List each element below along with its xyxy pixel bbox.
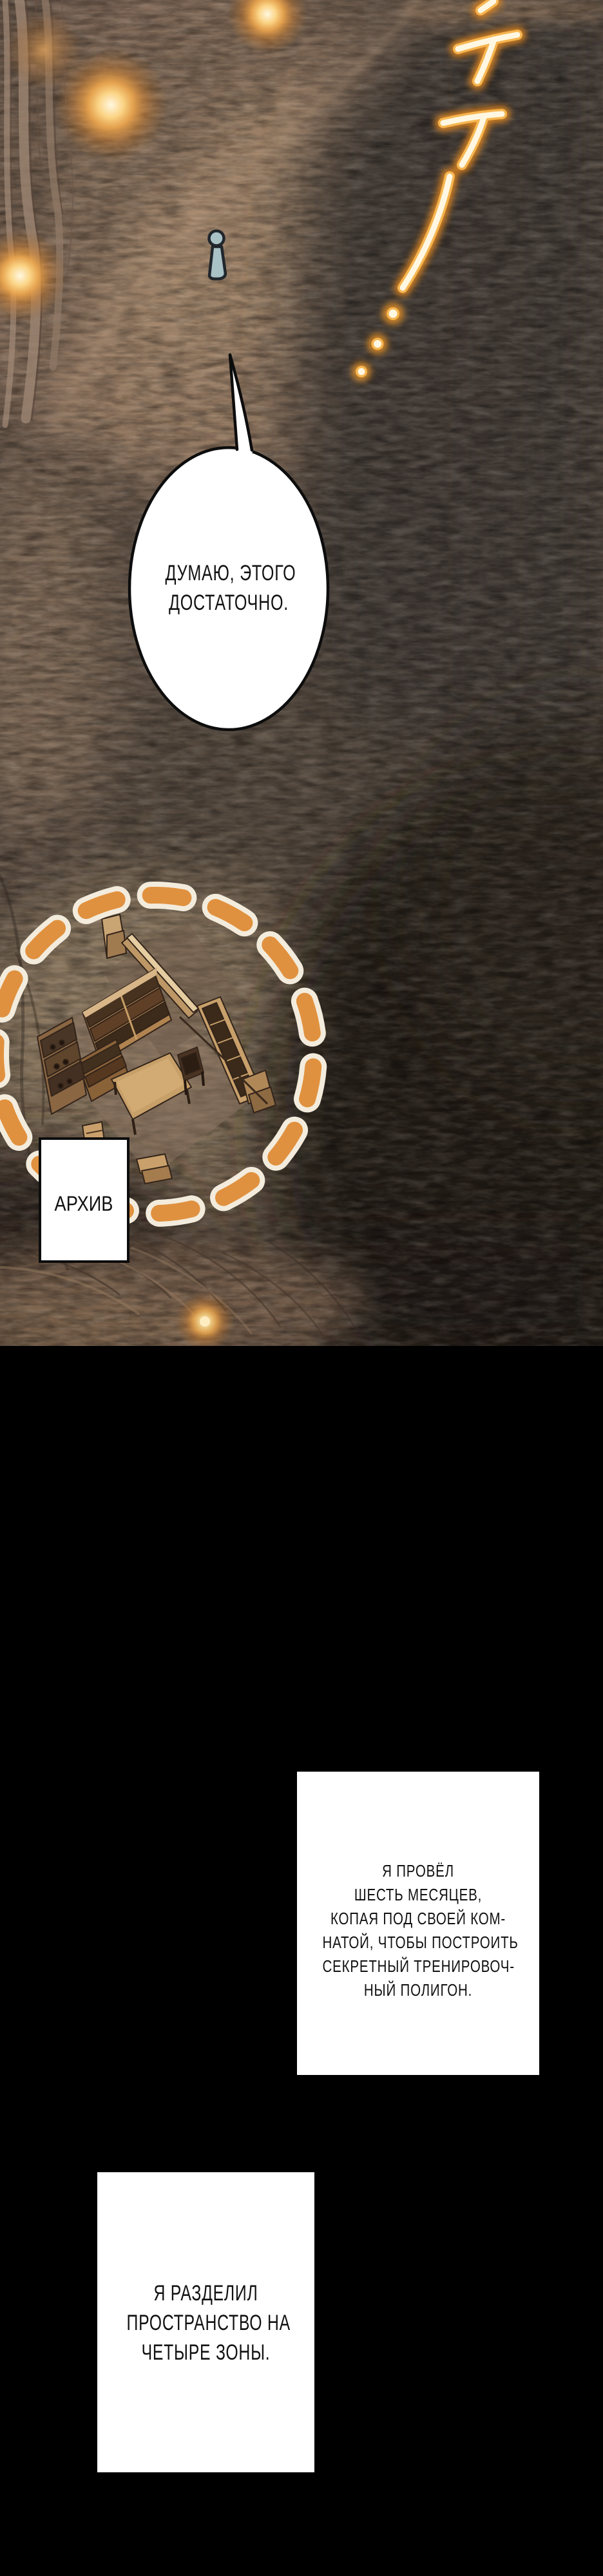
svg-text:ДОСТАТОЧНО.: ДОСТАТОЧНО. (169, 591, 289, 615)
svg-text:ДУМАЮ, ЭТОГО: ДУМАЮ, ЭТОГО (166, 561, 296, 585)
